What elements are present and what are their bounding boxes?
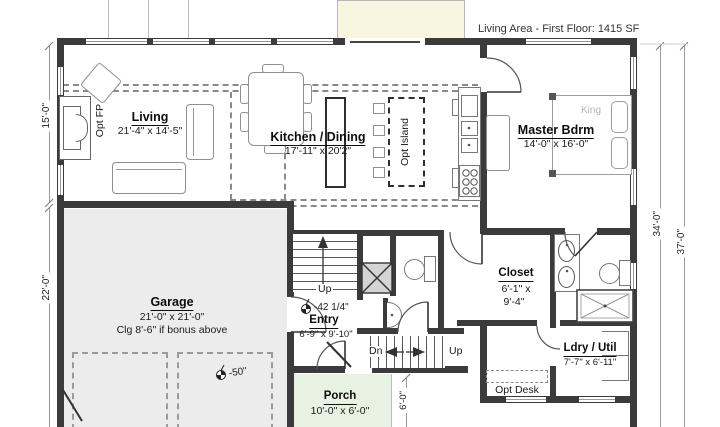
room-dims-laundry: 7'-7" x 6'-11" — [564, 358, 616, 368]
stool — [373, 125, 385, 136]
closet-door-arc — [450, 232, 482, 264]
garage-ceiling-note: Clg 8'-6" if bonus above — [117, 325, 228, 336]
room-label-entry: Entry — [309, 315, 338, 329]
toilet-tank — [424, 256, 436, 282]
window — [578, 396, 616, 403]
chase-box — [362, 263, 392, 293]
vanity-sink — [558, 266, 575, 288]
window — [630, 56, 637, 90]
porch-edge-line — [391, 374, 392, 427]
room-label-closet: Closet — [498, 268, 533, 282]
sofa-back-line — [116, 169, 182, 170]
stool — [373, 103, 385, 114]
window — [214, 38, 272, 45]
stairs-dn-label: Dn — [367, 346, 384, 357]
dimension-label-left-lower: 22'-0" — [42, 272, 52, 303]
room-label-laundry: Ldry / Util — [563, 343, 616, 357]
roof-line — [108, 0, 109, 38]
toilet-bowl — [404, 259, 425, 280]
room-dims-kitchen-dining: 17'-11" x 20'2" — [285, 146, 351, 157]
window — [276, 38, 334, 45]
wall-chase — [390, 232, 396, 296]
wall-bath-bottom — [560, 320, 637, 326]
dining-chair — [303, 84, 312, 104]
pedestal-sink — [387, 302, 402, 328]
window — [505, 396, 547, 403]
dimension-label-right-outer: 37'-0" — [677, 226, 687, 257]
room-dims-master-bedroom: 14'-0" x 16'-0" — [524, 139, 589, 150]
wall-bath-top — [597, 228, 637, 235]
master-door-arc — [487, 58, 521, 92]
opt-island-label: Opt Island — [400, 118, 411, 166]
dimension-label-right-inner: 34'-0" — [653, 208, 663, 239]
wall-kitchen-master — [480, 44, 487, 58]
room-label-kitchen-dining: Kitchen / Dining — [270, 131, 365, 146]
kitchen-sink — [461, 95, 478, 117]
window — [630, 262, 637, 290]
powder-door-arc — [398, 302, 428, 332]
roof-line — [188, 0, 189, 38]
window — [57, 66, 64, 96]
vanity-sink — [558, 240, 575, 262]
room-label-porch: Porch — [324, 391, 357, 405]
range — [459, 165, 480, 197]
dining-chair — [264, 145, 286, 154]
wall-closet-bottom — [457, 320, 537, 326]
sofa — [112, 162, 186, 194]
toilet-bowl — [599, 263, 620, 284]
armchair — [186, 104, 214, 160]
room-label-living: Living — [132, 111, 169, 126]
room-label-garage: Garage — [150, 296, 193, 311]
living-area-header: Living Area - First Floor: 1415 SF — [478, 24, 639, 35]
pillow — [611, 137, 628, 169]
pillow — [611, 101, 628, 133]
wall-powder-bottom — [428, 328, 464, 334]
room-dims-porch: 10'-0" x 6'-0" — [311, 406, 370, 417]
window — [85, 38, 148, 45]
stairs-up-label-entry: Up — [316, 284, 333, 295]
laundry-door-arc — [537, 326, 560, 349]
room-dims-garage: 21'-0" x 21'-0" — [140, 312, 205, 323]
parking-space — [177, 352, 273, 427]
wall-powder-bottom — [357, 328, 398, 334]
bed-post — [549, 170, 556, 177]
appliance-front — [452, 168, 459, 188]
deck-area — [337, 0, 465, 42]
room-dims-entry: 6'-9" x 9'-10" — [299, 330, 352, 340]
parking-space — [72, 352, 168, 427]
dimension-line-left-lower — [49, 208, 50, 427]
prep-square — [461, 138, 478, 153]
dining-chair — [240, 112, 249, 132]
window — [57, 164, 64, 196]
prep-square — [461, 121, 478, 136]
wall-stairs — [357, 230, 363, 300]
opt-desk-label: Opt Desk — [495, 385, 539, 396]
window — [525, 38, 592, 45]
front-door-arc — [317, 341, 345, 369]
wall-powder-right — [438, 230, 444, 330]
coat-closet-door-leaf — [327, 342, 351, 367]
bed-post — [549, 93, 556, 100]
dining-chair — [240, 84, 249, 104]
opt-fireplace-label: Opt FP — [95, 104, 106, 137]
armchair-line — [193, 108, 194, 156]
dining-chair — [262, 64, 284, 73]
elevation-marker-icon — [302, 299, 311, 314]
room-dims-closet-line2: 9'-4" — [504, 297, 525, 308]
slider-door — [350, 41, 420, 43]
dining-chair — [303, 112, 312, 132]
shower — [577, 290, 633, 322]
stairs-up-label-lower: Up — [449, 346, 462, 357]
window — [152, 38, 210, 45]
wall-desk-ldry — [550, 366, 556, 400]
bed-size-label: King — [581, 106, 601, 116]
stool — [373, 147, 385, 158]
wall-garage-top — [57, 201, 290, 208]
elevation-entry-label: -42 1/4" — [314, 303, 349, 313]
dresser — [486, 115, 510, 171]
wall-garage-right — [287, 332, 294, 427]
ceiling-break-line — [230, 92, 232, 200]
roof-line — [148, 0, 149, 38]
room-dims-closet-line1: 6'-1" x — [501, 284, 530, 295]
optional-desk — [486, 370, 548, 383]
room-dims-living: 21'-4" x 14'-5" — [118, 126, 183, 137]
dimension-label-porch-depth: 6'-0" — [399, 388, 409, 413]
toilet-tank — [619, 260, 631, 286]
room-label-master-bedroom: Master Bdrm — [518, 124, 594, 139]
wall-hall-right — [480, 320, 487, 400]
floor-plan: Living Area - First Floor: 1415 SF Livin… — [0, 0, 720, 427]
appliance-front — [452, 99, 459, 116]
stool — [373, 167, 385, 178]
dimension-label-left-upper: 15'-0" — [42, 100, 52, 131]
